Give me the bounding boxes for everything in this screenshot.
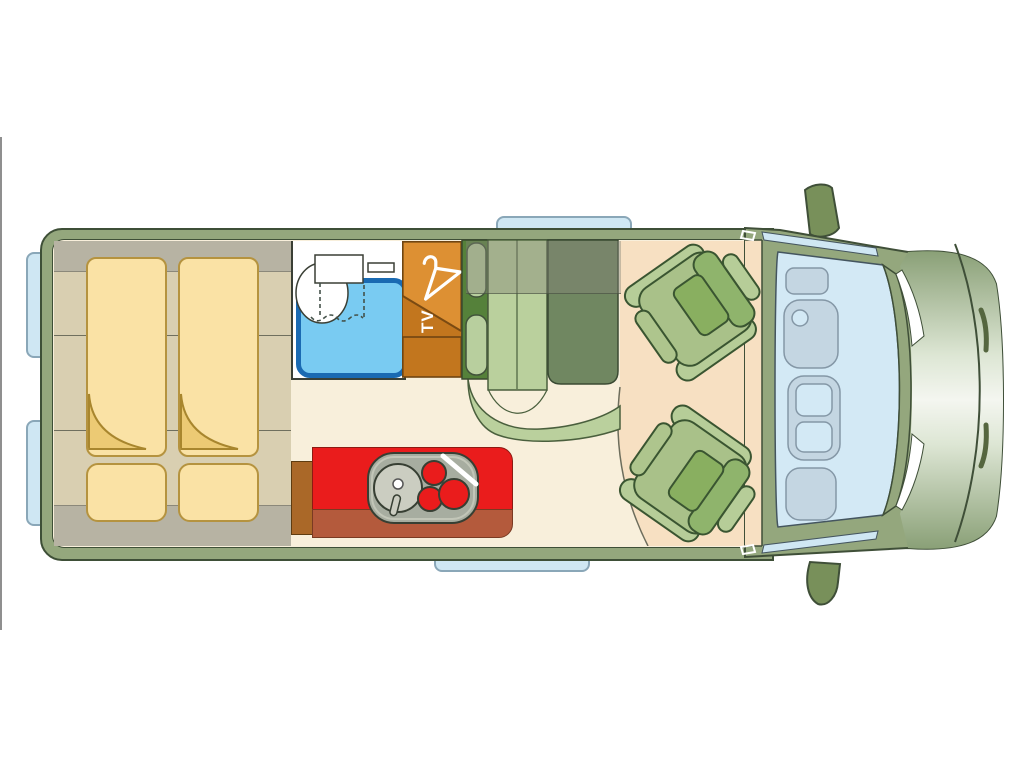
mattress-left: [86, 257, 167, 457]
side-mirror-bottom-icon: [807, 562, 840, 604]
tap-icon: [393, 479, 403, 489]
wardrobe: TV: [402, 241, 462, 378]
hood: [900, 251, 1003, 549]
pillow-left: [86, 463, 167, 522]
duvet-fold-icon: [88, 393, 161, 455]
side-mirror-top-icon: [805, 184, 839, 236]
swivel-seat-top: [617, 227, 780, 388]
overhead-locker-dinette: [466, 241, 621, 294]
burner-icon: [439, 479, 469, 509]
page-edge-line: [0, 137, 2, 630]
sink-and-hob-unit: [353, 448, 483, 528]
wardrobe-lower-cabinet: [403, 337, 461, 377]
swivel-seats: [600, 220, 790, 570]
dashboard: [784, 268, 840, 520]
cistern: [315, 255, 363, 283]
campervan-floorplan: TV: [0, 0, 1024, 768]
tv-label: TV: [418, 309, 437, 333]
mattress-right: [178, 257, 259, 457]
duvet-fold-icon: [180, 393, 253, 455]
swivel-seat-bottom: [612, 399, 775, 560]
bench-headrest: [466, 315, 487, 375]
kitchen-counter-end: [291, 461, 314, 535]
toilet-and-basin: [291, 239, 403, 379]
shelf-slot: [368, 263, 394, 272]
pillow-right: [178, 463, 259, 522]
burner-icon: [422, 461, 446, 485]
